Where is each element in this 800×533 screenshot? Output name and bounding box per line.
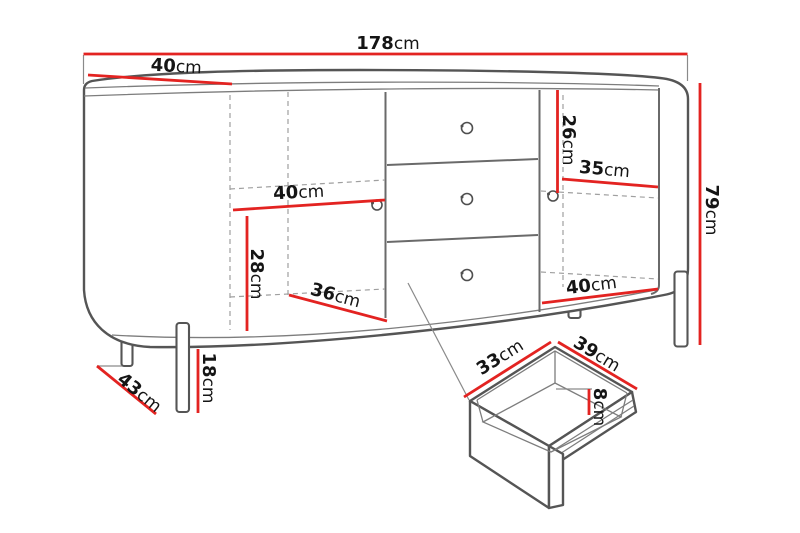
dim-label-total-height: 79cm xyxy=(701,185,722,236)
drawer-knob-3 xyxy=(461,270,473,281)
drawer-front-panel-edge xyxy=(549,446,563,508)
dim-label-right-shelf-width: 35cm xyxy=(578,157,631,182)
dim-label-left-shelf-width: 40cm xyxy=(273,181,325,205)
dim-label-right-upper-height: 26cm xyxy=(558,115,579,166)
drawer-knob-2 xyxy=(461,194,473,205)
dim-label-total-width: 178cm xyxy=(356,33,420,54)
dim-label-floor-depth: 43cm xyxy=(113,369,166,417)
dim-label-leg-height: 18cm xyxy=(198,353,219,404)
dimension-diagram: 178cm 40cm 26cm 35cm 79cm 40cm 28cm 36cm… xyxy=(0,0,800,533)
drawer-knob-1 xyxy=(461,123,473,134)
dim-label-top-depth: 40cm xyxy=(150,55,202,79)
cabinet-body xyxy=(84,70,688,347)
cabinet-front-left-leg xyxy=(177,323,190,412)
cabinet-front-right-leg xyxy=(675,272,688,347)
dim-label-left-lower-height: 28cm xyxy=(246,249,267,300)
diagram-canvas: 178cm 40cm 26cm 35cm 79cm 40cm 28cm 36cm… xyxy=(0,0,800,533)
dim-label-drawer-inner-height: 8cm xyxy=(589,388,610,426)
